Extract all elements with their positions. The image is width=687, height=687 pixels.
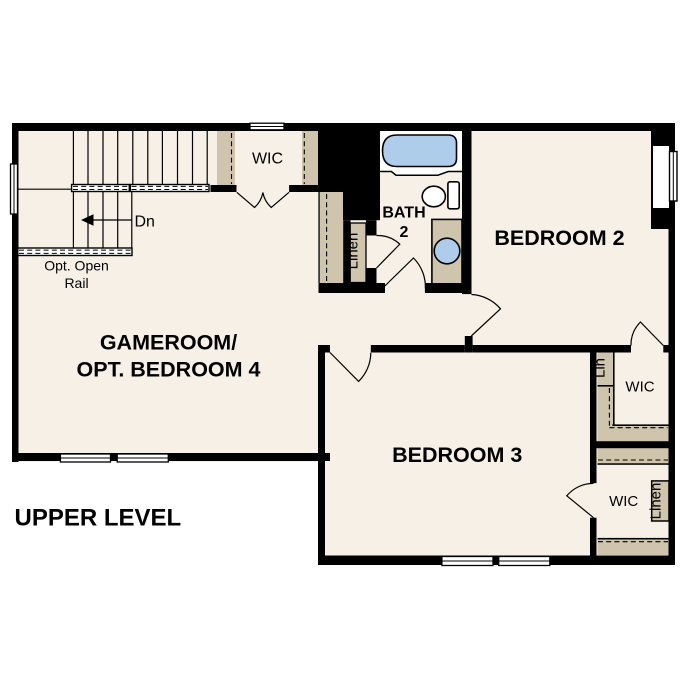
svg-text:Rail: Rail	[64, 275, 88, 291]
svg-text:2: 2	[400, 224, 409, 241]
svg-text:GAMEROOM/: GAMEROOM/	[100, 331, 237, 355]
svg-text:BEDROOM 2: BEDROOM 2	[494, 226, 624, 250]
svg-text:OPT. BEDROOM 4: OPT. BEDROOM 4	[77, 357, 261, 381]
svg-text:Opt. Open: Opt. Open	[44, 258, 109, 274]
svg-text:Lin: Lin	[592, 358, 609, 378]
svg-text:Linen: Linen	[648, 483, 665, 520]
svg-text:WIC: WIC	[252, 151, 283, 168]
svg-text:BEDROOM 3: BEDROOM 3	[392, 443, 522, 467]
svg-text:Dn: Dn	[135, 213, 155, 230]
svg-text:WIC: WIC	[609, 493, 638, 510]
svg-text:Linen: Linen	[345, 233, 362, 270]
svg-text:UPPER LEVEL: UPPER LEVEL	[15, 505, 182, 532]
svg-text:BATH: BATH	[382, 205, 425, 222]
svg-text:WIC: WIC	[625, 379, 654, 396]
